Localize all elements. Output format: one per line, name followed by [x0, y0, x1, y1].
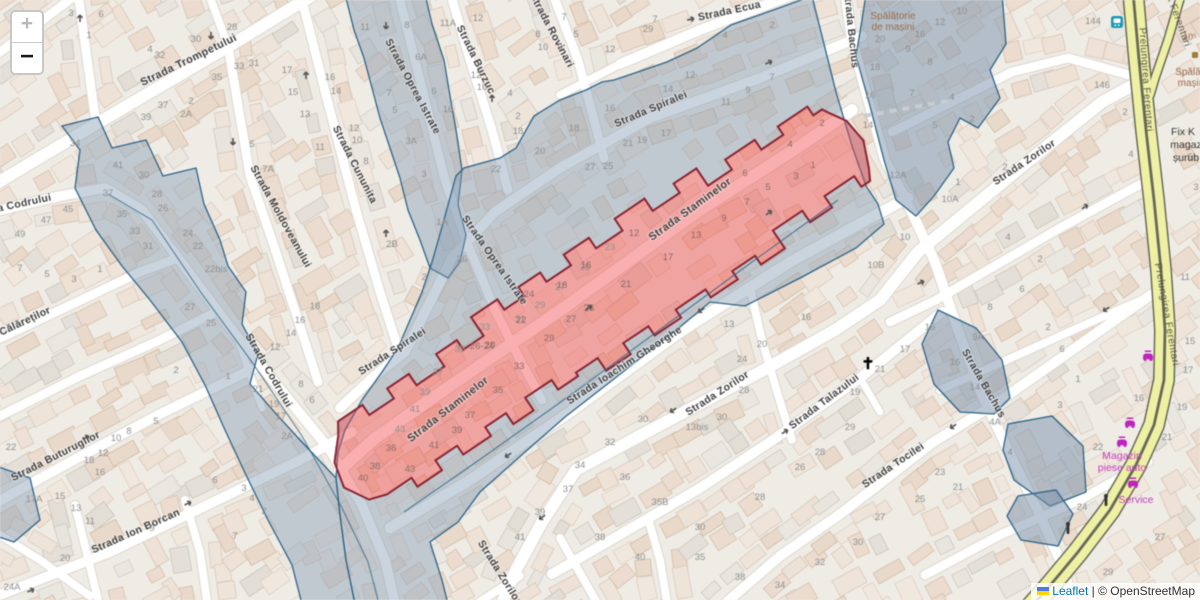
svg-text:21: 21: [623, 138, 634, 149]
svg-text:16: 16: [95, 467, 106, 478]
svg-text:2: 2: [1037, 254, 1042, 265]
svg-text:12: 12: [473, 13, 484, 24]
svg-text:26-24: 26-24: [470, 341, 494, 352]
svg-text:1: 1: [1075, 374, 1080, 385]
svg-text:32: 32: [815, 557, 826, 568]
svg-text:11: 11: [1180, 272, 1190, 283]
svg-text:27: 27: [875, 512, 886, 523]
svg-text:7A: 7A: [262, 164, 274, 175]
svg-text:17: 17: [1183, 365, 1194, 376]
svg-text:12A: 12A: [890, 170, 908, 181]
svg-text:6: 6: [742, 168, 747, 179]
svg-text:20: 20: [535, 146, 546, 157]
svg-text:18: 18: [569, 123, 580, 134]
svg-text:5: 5: [249, 139, 254, 150]
svg-text:7: 7: [769, 72, 774, 83]
svg-text:10⁵: 10⁵: [1183, 32, 1197, 42]
svg-text:7: 7: [909, 88, 914, 99]
svg-text:11: 11: [721, 97, 731, 108]
svg-text:5: 5: [392, 105, 397, 116]
svg-text:16: 16: [865, 90, 876, 101]
svg-text:27: 27: [566, 314, 577, 325]
svg-text:5: 5: [44, 269, 49, 280]
svg-text:Spălătorie: Spălătorie: [870, 11, 915, 22]
svg-text:6: 6: [1059, 344, 1064, 355]
svg-text:16: 16: [443, 104, 454, 115]
svg-text:34: 34: [70, 138, 81, 149]
svg-text:35: 35: [212, 72, 223, 83]
svg-text:10: 10: [957, 6, 968, 17]
svg-text:31: 31: [249, 58, 260, 69]
svg-text:3: 3: [421, 169, 426, 180]
svg-text:19: 19: [1177, 402, 1188, 413]
svg-text:24: 24: [183, 228, 194, 239]
svg-text:2: 2: [173, 365, 178, 376]
svg-text:40: 40: [358, 473, 369, 484]
svg-text:8: 8: [126, 426, 131, 437]
svg-text:5: 5: [573, 29, 578, 40]
svg-text:15: 15: [288, 87, 299, 98]
svg-text:magaz: magaz: [1170, 139, 1200, 151]
svg-text:49: 49: [15, 229, 26, 240]
svg-text:4: 4: [722, 30, 727, 41]
svg-text:25: 25: [603, 161, 614, 172]
svg-text:36: 36: [386, 443, 397, 454]
svg-text:32: 32: [605, 437, 616, 448]
svg-text:27: 27: [185, 302, 196, 313]
svg-text:7: 7: [652, 14, 657, 25]
svg-text:30: 30: [139, 170, 150, 181]
svg-text:21: 21: [875, 364, 886, 375]
svg-text:9: 9: [721, 213, 726, 224]
svg-text:39: 39: [141, 112, 152, 123]
svg-text:35: 35: [695, 552, 706, 563]
svg-text:15: 15: [55, 491, 66, 502]
svg-text:2: 2: [1122, 107, 1127, 118]
svg-text:7: 7: [386, 88, 391, 99]
svg-text:16: 16: [801, 312, 812, 323]
svg-text:8: 8: [987, 302, 992, 313]
svg-text:38: 38: [370, 461, 381, 472]
svg-text:22: 22: [491, 164, 502, 175]
svg-text:3: 3: [71, 274, 76, 285]
svg-text:28: 28: [152, 189, 163, 200]
svg-text:3: 3: [1193, 182, 1198, 193]
svg-text:29: 29: [643, 24, 654, 35]
svg-text:3: 3: [793, 171, 798, 182]
svg-text:24: 24: [524, 289, 535, 300]
svg-text:33: 33: [130, 226, 141, 237]
svg-text:25: 25: [206, 318, 217, 329]
svg-text:29: 29: [535, 300, 546, 311]
svg-text:35: 35: [117, 209, 128, 220]
svg-text:12: 12: [98, 448, 109, 459]
svg-text:19: 19: [850, 387, 861, 398]
svg-text:21: 21: [1162, 432, 1173, 443]
svg-text:27: 27: [585, 162, 596, 173]
svg-text:17: 17: [663, 252, 674, 263]
svg-text:13: 13: [300, 109, 311, 120]
svg-text:22: 22: [193, 241, 204, 252]
svg-text:Fix K: Fix K: [1171, 126, 1195, 138]
svg-text:27: 27: [1155, 532, 1166, 543]
svg-text:12: 12: [605, 44, 616, 55]
svg-text:38: 38: [735, 572, 746, 583]
svg-text:23: 23: [605, 242, 616, 253]
svg-text:37: 37: [465, 410, 476, 421]
svg-text:33: 33: [514, 361, 525, 372]
svg-text:24A: 24A: [4, 582, 22, 593]
svg-text:24: 24: [737, 354, 748, 365]
svg-text:23: 23: [935, 467, 946, 478]
svg-text:15: 15: [925, 322, 936, 333]
svg-text:30: 30: [717, 412, 728, 423]
svg-text:30: 30: [695, 522, 706, 533]
svg-text:12: 12: [270, 342, 281, 353]
svg-text:7: 7: [17, 263, 22, 274]
svg-text:22: 22: [6, 442, 17, 453]
svg-text:16: 16: [581, 260, 592, 271]
svg-text:30: 30: [853, 537, 864, 548]
svg-text:4: 4: [949, 92, 954, 103]
svg-text:10: 10: [352, 135, 363, 146]
svg-text:9: 9: [905, 44, 910, 55]
svg-text:2: 2: [969, 114, 974, 125]
svg-text:24: 24: [1077, 502, 1088, 513]
svg-text:12: 12: [629, 228, 640, 239]
svg-text:18: 18: [870, 62, 881, 73]
svg-text:4: 4: [1005, 232, 1010, 243]
svg-text:41: 41: [410, 404, 421, 415]
svg-text:2: 2: [1002, 162, 1007, 173]
svg-text:39: 39: [452, 425, 463, 436]
svg-text:șurub: șurub: [1173, 152, 1199, 164]
svg-text:4A: 4A: [989, 417, 1001, 428]
svg-text:Service: Service: [1118, 494, 1153, 506]
svg-text:2: 2: [421, 272, 426, 283]
svg-text:20: 20: [60, 553, 71, 564]
svg-text:37: 37: [103, 188, 114, 199]
svg-text:2: 2: [769, 20, 774, 31]
svg-text:20: 20: [757, 339, 768, 350]
svg-text:mașin: mașin: [1178, 78, 1200, 89]
svg-text:7: 7: [232, 531, 237, 542]
svg-text:13: 13: [71, 503, 82, 514]
svg-text:8: 8: [298, 379, 303, 390]
svg-text:16: 16: [325, 72, 336, 83]
svg-text:2A: 2A: [281, 431, 293, 442]
svg-text:40: 40: [635, 552, 646, 563]
svg-text:8: 8: [363, 156, 368, 167]
svg-text:34: 34: [775, 580, 786, 591]
svg-text:30: 30: [191, 34, 202, 45]
svg-text:11: 11: [315, 142, 325, 153]
svg-text:14: 14: [663, 84, 674, 95]
svg-text:4: 4: [507, 88, 512, 99]
svg-text:37: 37: [158, 100, 169, 111]
svg-text:35B: 35B: [652, 497, 669, 508]
svg-text:10: 10: [900, 232, 911, 243]
svg-text:1: 1: [86, 30, 91, 41]
svg-text:2: 2: [188, 96, 193, 107]
svg-text:4: 4: [1128, 149, 1133, 160]
svg-text:Spălă: Spălă: [1175, 67, 1200, 78]
svg-text:1: 1: [955, 177, 960, 188]
svg-text:33: 33: [234, 61, 245, 72]
svg-text:19: 19: [269, 399, 280, 410]
svg-text:10: 10: [111, 433, 122, 444]
svg-text:29: 29: [845, 422, 856, 433]
svg-text:18: 18: [84, 455, 95, 466]
svg-text:35: 35: [493, 385, 504, 396]
svg-text:6: 6: [1019, 284, 1024, 295]
svg-text:43: 43: [395, 424, 406, 435]
svg-text:6A: 6A: [415, 52, 427, 63]
svg-text:10: 10: [538, 42, 549, 53]
svg-text:8: 8: [535, 29, 540, 40]
svg-text:5: 5: [153, 416, 158, 427]
svg-text:1A: 1A: [436, 217, 448, 228]
svg-text:30: 30: [638, 414, 649, 425]
svg-text:2: 2: [819, 118, 824, 129]
svg-text:28: 28: [227, 22, 238, 33]
svg-text:41: 41: [429, 440, 440, 451]
svg-text:14: 14: [286, 328, 297, 339]
svg-text:2: 2: [515, 111, 520, 122]
svg-text:38: 38: [595, 532, 606, 543]
svg-text:3: 3: [241, 483, 246, 494]
svg-text:1: 1: [225, 371, 230, 382]
svg-text:41: 41: [515, 532, 526, 543]
svg-text:8: 8: [404, 20, 409, 31]
svg-text:4: 4: [1007, 447, 1012, 458]
svg-text:17: 17: [900, 344, 911, 355]
svg-text:22: 22: [516, 315, 527, 326]
svg-text:28: 28: [755, 492, 766, 503]
svg-text:17: 17: [661, 128, 672, 139]
svg-text:9: 9: [149, 523, 154, 534]
svg-text:11A: 11A: [440, 18, 457, 29]
svg-text:17: 17: [282, 65, 293, 76]
svg-text:15: 15: [1185, 336, 1196, 347]
svg-text:47: 47: [41, 215, 52, 226]
svg-text:18: 18: [310, 301, 321, 312]
svg-text:32: 32: [155, 50, 166, 61]
svg-text:21: 21: [953, 482, 964, 493]
svg-text:11: 11: [85, 516, 95, 527]
svg-text:5: 5: [765, 182, 770, 193]
svg-text:✝: ✝: [861, 356, 874, 373]
svg-text:de mașini: de mașini: [872, 22, 915, 33]
svg-text:9A: 9A: [972, 332, 984, 343]
svg-text:28: 28: [739, 385, 750, 396]
svg-text:16: 16: [915, 29, 926, 40]
svg-text:12: 12: [471, 70, 482, 81]
svg-text:8: 8: [927, 57, 932, 68]
svg-text:3: 3: [68, 8, 73, 19]
svg-text:18: 18: [557, 280, 568, 291]
svg-text:36: 36: [620, 472, 631, 483]
svg-text:18: 18: [513, 126, 524, 137]
svg-text:12: 12: [935, 17, 946, 28]
svg-text:144: 144: [1085, 16, 1101, 27]
svg-text:2: 2: [261, 506, 266, 517]
svg-text:16: 16: [295, 315, 306, 326]
svg-text:14: 14: [970, 382, 981, 393]
svg-text:45: 45: [63, 204, 74, 215]
svg-text:31: 31: [143, 241, 154, 252]
svg-text:17: 17: [276, 411, 287, 422]
svg-text:Magazin: Magazin: [1102, 450, 1142, 462]
svg-text:26: 26: [795, 462, 806, 473]
svg-text:11: 11: [360, 22, 370, 33]
svg-text:6: 6: [212, 475, 217, 486]
svg-text:37: 37: [563, 484, 574, 495]
svg-text:26: 26: [457, 254, 468, 265]
svg-text:21: 21: [253, 384, 264, 395]
svg-text:1: 1: [810, 160, 815, 171]
svg-text:14: 14: [863, 120, 874, 131]
svg-text:35: 35: [455, 344, 466, 355]
svg-text:19: 19: [637, 135, 648, 146]
svg-text:28: 28: [815, 447, 826, 458]
svg-text:6: 6: [98, 9, 103, 20]
svg-text:piese auto: piese auto: [1098, 462, 1147, 474]
svg-text:10B: 10B: [868, 260, 885, 271]
svg-text:29: 29: [1103, 567, 1114, 578]
svg-text:13bis: 13bis: [686, 422, 709, 433]
svg-text:2B: 2B: [386, 239, 398, 250]
svg-text:2A: 2A: [180, 109, 192, 120]
svg-text:146: 146: [1094, 80, 1110, 91]
svg-text:3: 3: [1057, 400, 1062, 411]
svg-text:9: 9: [745, 85, 750, 96]
svg-text:16: 16: [1134, 393, 1145, 404]
svg-text:10A: 10A: [942, 194, 960, 205]
svg-text:12: 12: [685, 70, 696, 81]
svg-text:7: 7: [561, 12, 566, 23]
svg-text:16: 16: [950, 357, 961, 368]
svg-text:21: 21: [621, 279, 632, 290]
svg-text:12: 12: [349, 123, 360, 134]
svg-text:2: 2: [1045, 322, 1050, 333]
svg-text:25: 25: [915, 494, 926, 505]
svg-text:7: 7: [744, 197, 749, 208]
svg-text:5: 5: [932, 120, 937, 131]
svg-text:13: 13: [691, 230, 702, 241]
svg-text:1: 1: [97, 264, 102, 275]
svg-text:33: 33: [480, 322, 491, 333]
svg-text:22bis: 22bis: [205, 264, 228, 275]
svg-text:6: 6: [309, 395, 314, 406]
svg-text:16: 16: [605, 103, 616, 114]
svg-text:17A: 17A: [26, 494, 44, 505]
svg-text:13: 13: [724, 319, 735, 330]
svg-text:4: 4: [147, 44, 152, 55]
svg-text:26: 26: [158, 203, 169, 214]
svg-text:34: 34: [575, 460, 586, 471]
svg-text:20: 20: [875, 34, 886, 45]
svg-text:10: 10: [477, 82, 488, 93]
svg-text:39: 39: [420, 387, 431, 398]
svg-text:29: 29: [544, 333, 555, 344]
svg-text:14: 14: [331, 86, 342, 97]
svg-text:6: 6: [431, 86, 436, 97]
svg-text:37: 37: [433, 367, 444, 378]
svg-text:3A: 3A: [405, 136, 417, 147]
svg-text:9: 9: [557, 42, 562, 53]
svg-text:4: 4: [787, 139, 792, 150]
svg-text:41: 41: [113, 160, 124, 171]
svg-text:4: 4: [249, 493, 254, 504]
svg-text:43: 43: [405, 464, 416, 475]
